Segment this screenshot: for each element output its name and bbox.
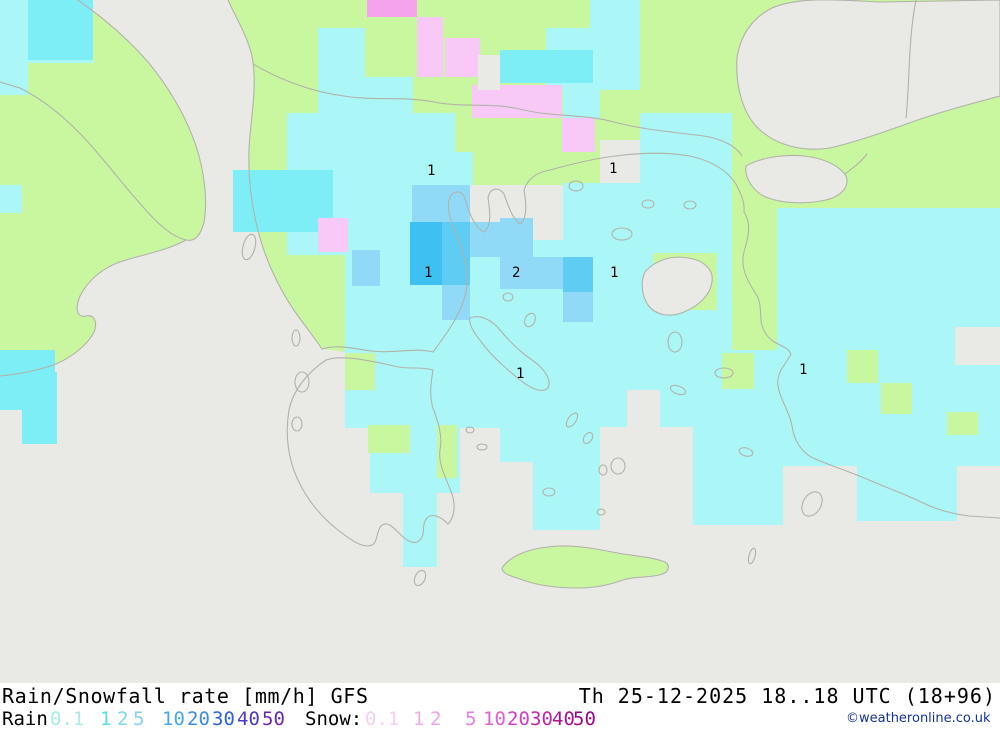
rain-legend-label: Rain xyxy=(2,708,48,730)
precip-cell xyxy=(500,350,627,427)
precip-cell xyxy=(500,257,563,289)
precip-cell xyxy=(352,250,380,286)
precip-cell xyxy=(445,152,473,185)
precip-cell xyxy=(318,28,365,115)
rain-scale-value: 2 xyxy=(117,708,128,730)
map-value-label: 1 xyxy=(424,265,432,281)
snow-scale-value: 2 xyxy=(430,708,441,730)
sea-cell xyxy=(478,55,500,90)
precip-cell xyxy=(345,240,640,360)
snow-scale-value: 10 xyxy=(483,708,506,730)
precip-cell xyxy=(318,218,348,252)
rain-scale-value: 1 xyxy=(100,708,111,730)
copyright-text: ©weatheronline.co.uk xyxy=(846,711,996,726)
weather-map-page: 1111211 Rain/Snowfall rate [mm/h] GFS Th… xyxy=(0,0,1000,733)
map-value-label: 1 xyxy=(609,161,617,177)
precip-cell xyxy=(563,90,600,118)
snow-scale-value: 50 xyxy=(573,708,596,730)
precip-cell xyxy=(417,17,443,77)
precip-cell xyxy=(403,493,437,567)
map-canvas: 1111211 xyxy=(0,0,1000,683)
land-cell xyxy=(368,425,410,453)
precip-cell xyxy=(445,38,480,77)
rain-scale-value: 30 xyxy=(212,708,235,730)
snow-scale-value: 40 xyxy=(552,708,575,730)
precip-cell xyxy=(0,185,22,213)
precip-cell xyxy=(365,77,413,113)
land-cell xyxy=(947,412,978,435)
map-datetime: Th 25-12-2025 18..18 UTC (18+96) xyxy=(560,684,996,708)
precip-cell xyxy=(500,218,533,257)
land-cell xyxy=(847,350,878,383)
map-value-label: 1 xyxy=(516,366,524,382)
snow-legend-label: Snow: xyxy=(305,708,362,730)
precip-cell xyxy=(660,390,693,427)
land-cell xyxy=(881,383,912,414)
rain-scale-value: 5 xyxy=(133,708,144,730)
precip-cell xyxy=(640,113,732,360)
land-cell xyxy=(722,353,754,389)
rain-scale-value: 20 xyxy=(187,708,210,730)
precip-cell xyxy=(563,292,593,322)
map-value-label: 2 xyxy=(512,265,520,281)
snow-scale-value: 5 xyxy=(465,708,476,730)
snow-scale-value: 0.1 xyxy=(365,708,399,730)
precip-cell xyxy=(367,0,417,17)
rain-scale-value: 10 xyxy=(162,708,185,730)
rain-scale-value: 50 xyxy=(262,708,285,730)
precip-cell xyxy=(563,257,593,292)
snow-scale-value: 1 xyxy=(413,708,424,730)
map-title: Rain/Snowfall rate [mm/h] GFS xyxy=(2,684,369,708)
precip-cell xyxy=(442,222,470,285)
rain-scale-value: 40 xyxy=(237,708,260,730)
sea-cell xyxy=(955,327,1000,365)
precip-cell xyxy=(693,428,783,525)
precip-cell xyxy=(500,50,593,83)
precip-cell xyxy=(500,427,600,462)
precip-cell xyxy=(28,0,93,60)
map-value-label: 1 xyxy=(610,265,618,281)
precip-cell xyxy=(412,185,470,222)
precip-cell xyxy=(562,118,595,152)
precip-cell xyxy=(627,350,693,390)
land-area xyxy=(732,205,777,353)
precipitation-map: 1111211 xyxy=(0,0,1000,683)
rain-scale-value: 0.1 xyxy=(50,708,84,730)
map-value-label: 1 xyxy=(427,163,435,179)
precip-cell xyxy=(857,466,957,521)
snow-scale-value: 30 xyxy=(530,708,553,730)
precip-cell xyxy=(590,0,640,28)
precip-cell xyxy=(566,462,600,530)
map-value-label: 1 xyxy=(799,362,807,378)
precip-cell xyxy=(22,372,57,444)
snow-scale-value: 20 xyxy=(507,708,530,730)
